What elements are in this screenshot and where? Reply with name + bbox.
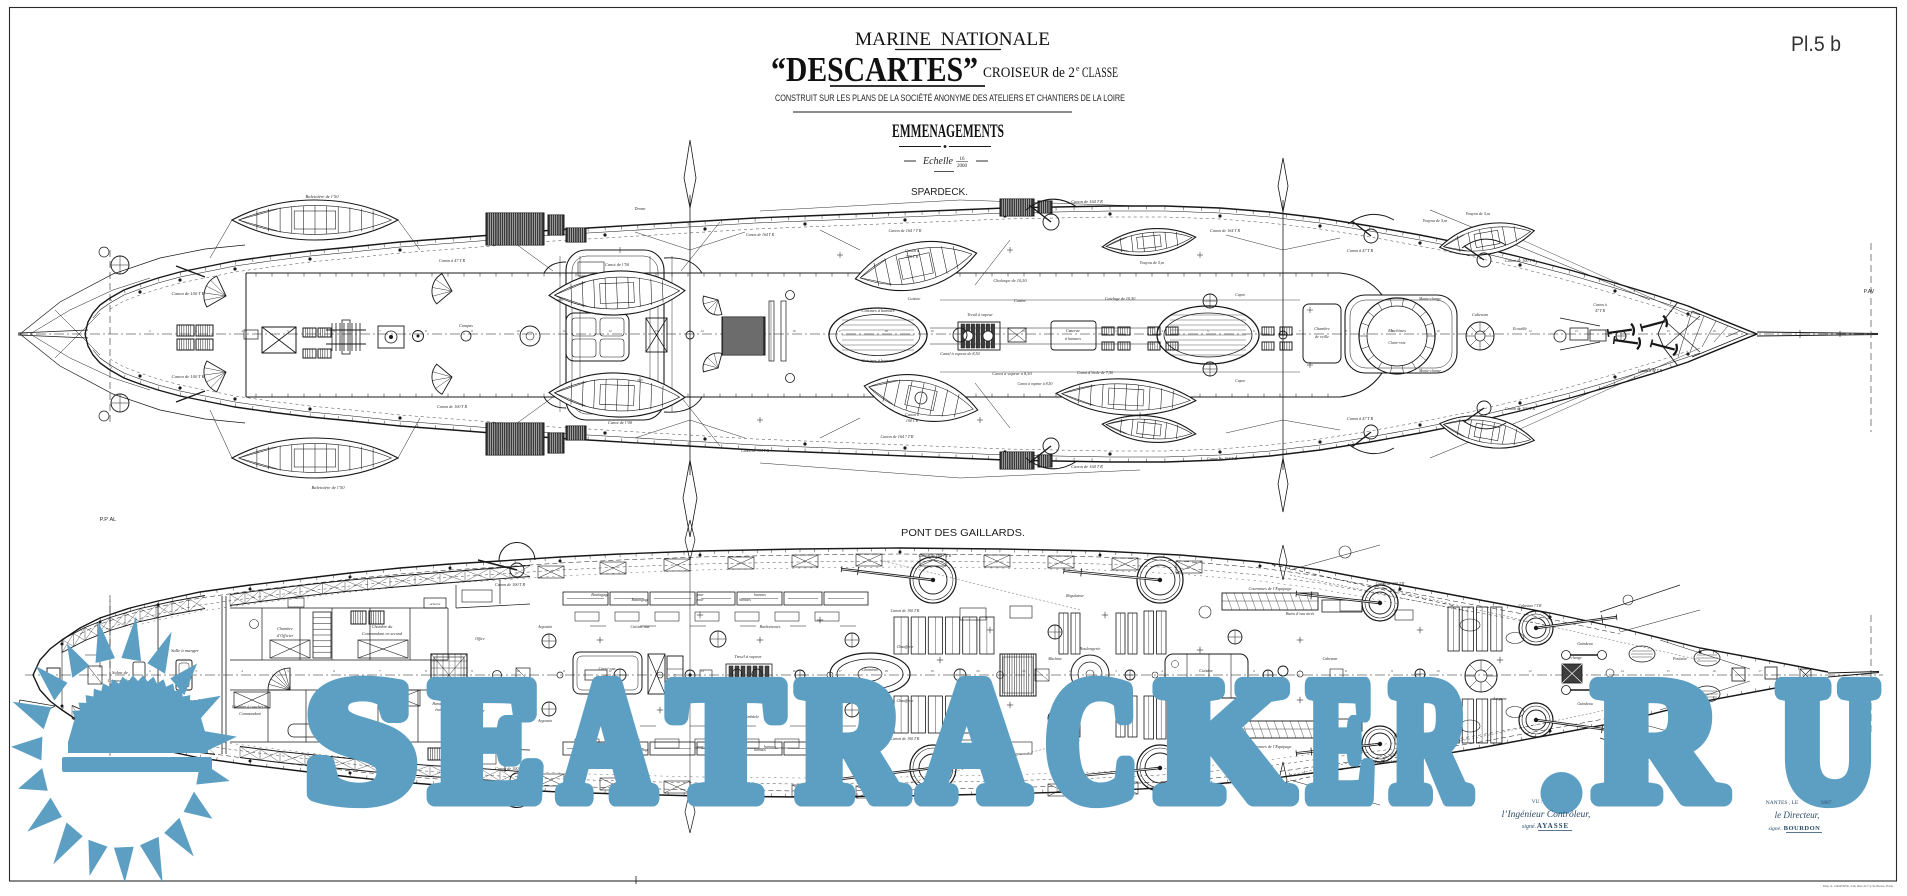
svg-text:Bastingage: Bastingage <box>591 593 609 597</box>
svg-text:Salon de: Salon de <box>112 670 128 675</box>
svg-text:9: 9 <box>471 329 473 333</box>
svg-text:Treuil à vapeur: Treuil à vapeur <box>967 312 993 317</box>
svg-text:Chambre: Chambre <box>1314 326 1330 331</box>
svg-text:Canon de 164 T R: Canon de 164 T R <box>1071 199 1103 204</box>
svg-text:Cabestan: Cabestan <box>1472 312 1488 317</box>
svg-text:2: 2 <box>149 669 151 673</box>
svg-text:15: 15 <box>1666 329 1670 333</box>
svg-text:Canon de 164 ? T R: Canon de 164 ? T R <box>889 228 922 233</box>
svg-text:CROISEUR de 2: CROISEUR de 2 <box>983 65 1075 81</box>
svg-text:Canot de l’50: Canot de l’50 <box>605 262 630 267</box>
svg-text:1887: 1887 <box>1821 800 1832 806</box>
svg-text:12: 12 <box>1528 329 1532 333</box>
svg-text:13: 13 <box>1574 329 1578 333</box>
svg-text:14: 14 <box>700 329 704 333</box>
svg-text:R: R <box>798 646 906 836</box>
svg-text:EMMENAGEMENTS: EMMENAGEMENTS <box>892 122 1004 142</box>
svg-text:pour: pour <box>695 598 704 602</box>
svg-text:Canon de 100 T R: Canon de 100 T R <box>1376 581 1405 586</box>
svg-text:Canon de 100 T R: Canon de 100 T R <box>172 374 205 379</box>
svg-text:Bastingage: Bastingage <box>631 598 648 602</box>
svg-text:Canon de 164 T R: Canon de 164 T R <box>1210 228 1241 233</box>
svg-text:Armoire: Armoire <box>429 602 441 606</box>
svg-text:Salle à manger: Salle à manger <box>171 648 199 653</box>
svg-text:BOURDON: BOURDON <box>1784 825 1821 832</box>
svg-text:Chambre du: Chambre du <box>372 624 393 629</box>
svg-text:3: 3 <box>1115 329 1117 333</box>
svg-text:Canon à: Canon à <box>1593 303 1606 307</box>
svg-text:17: 17 <box>1758 669 1762 673</box>
svg-text:E: E <box>432 646 544 836</box>
svg-text:le Directeur,: le Directeur, <box>1775 810 1820 820</box>
svg-text:Echelle: Echelle <box>922 156 954 167</box>
svg-text:à hamacs: à hamacs <box>1065 336 1081 341</box>
svg-text:Cuisines à hamacs: Cuisines à hamacs <box>862 358 895 363</box>
svg-text:Couronnes de l’Equipage: Couronnes de l’Equipage <box>1249 586 1292 591</box>
svg-text:Cuisine aux: Cuisine aux <box>631 624 650 629</box>
svg-text:6: 6 <box>1253 329 1255 333</box>
svg-text:Compas: Compas <box>459 323 473 328</box>
svg-text:Canon de 100 T R: Canon de 100 T R <box>437 404 468 409</box>
svg-text:Capot: Capot <box>1235 293 1245 297</box>
svg-text:4: 4 <box>1161 329 1163 333</box>
svg-text:Commandant: Commandant <box>239 711 261 716</box>
svg-text:NANTES , LE: NANTES , LE <box>1766 800 1799 806</box>
svg-text:A: A <box>560 646 654 836</box>
svg-text:R: R <box>1391 646 1470 836</box>
svg-text:MARINE NATIONALE: MARINE NATIONALE <box>855 29 1050 50</box>
svg-text:100 T R: 100 T R <box>906 254 919 259</box>
svg-text:Canon de 164 ? T R: Canon de 164 ? T R <box>881 434 914 439</box>
svg-text:100 T R: 100 T R <box>906 418 919 423</box>
svg-text:11: 11 <box>1482 329 1486 333</box>
svg-text:Baleinière de l’50: Baleinière de l’50 <box>306 194 340 199</box>
svg-text:K: K <box>1158 646 1292 836</box>
svg-text:Canon de 164 ? T R: Canon de 164 ? T R <box>919 553 952 558</box>
svg-text:P.P AL: P.P AL <box>100 517 116 523</box>
svg-text:Office: Office <box>475 637 485 641</box>
svg-text:8: 8 <box>425 329 427 333</box>
svg-text:7: 7 <box>379 329 381 333</box>
svg-text:signé.: signé. <box>1769 826 1782 832</box>
svg-text:Baleinière de l’50: Baleinière de l’50 <box>312 485 346 490</box>
svg-text:Monte-charge: Monte-charge <box>1418 297 1441 301</box>
svg-text:3: 3 <box>195 669 197 673</box>
svg-text:A: A <box>920 646 1028 836</box>
svg-text:CONSTRUIT SUR LES PLANS DE LA: CONSTRUIT SUR LES PLANS DE LA SOCIÉTÉ AN… <box>775 93 1125 103</box>
svg-text:Guindeau: Guindeau <box>1577 642 1592 646</box>
svg-text:7: 7 <box>1299 329 1301 333</box>
svg-text:VU :: VU : <box>1532 799 1543 805</box>
svg-text:Canon à: Canon à <box>905 412 919 417</box>
svg-text:Caserne: Caserne <box>1066 328 1080 333</box>
svg-text:11: 11 <box>562 329 566 333</box>
svg-text:Capot: Capot <box>1235 379 1245 383</box>
svg-text:Commandant en second: Commandant en second <box>362 631 403 636</box>
svg-text:U: U <box>1778 646 1878 836</box>
svg-text:16: 16 <box>1712 329 1716 333</box>
svg-text:Régulateur: Régulateur <box>1065 593 1084 598</box>
svg-text:C: C <box>1046 646 1138 836</box>
svg-text:10: 10 <box>516 329 520 333</box>
svg-text:Monte-charge: Monte-charge <box>1418 369 1441 373</box>
svg-text:Machines: Machines <box>1387 328 1406 333</box>
svg-text:Cuisines à hamacs: Cuisines à hamacs <box>862 308 895 313</box>
svg-text:Guindeau: Guindeau <box>1577 702 1592 706</box>
svg-text:Canon de 164 T R: Canon de 164 T R <box>1071 464 1103 469</box>
svg-text:Cuisine: Cuisine <box>1014 299 1026 303</box>
svg-text:2000: 2000 <box>957 164 968 169</box>
svg-text:Canon de 100 T R: Canon de 100 T R <box>1505 406 1536 411</box>
svg-text:Canot de l’00: Canot de l’00 <box>608 420 633 425</box>
svg-text:“DESCARTES”: “DESCARTES” <box>771 50 978 89</box>
svg-text:Argousin: Argousin <box>537 625 552 629</box>
svg-text:hamacs: hamacs <box>739 598 751 602</box>
svg-text:4: 4 <box>241 669 243 673</box>
svg-text:CLASSE: CLASSE <box>1082 65 1118 81</box>
svg-text:Canon de 164 T R: Canon de 164 T R <box>741 449 770 453</box>
svg-text:Canon à 47 T R: Canon à 47 T R <box>1347 248 1374 253</box>
svg-text:de veille: de veille <box>1315 334 1329 339</box>
svg-text:signé.: signé. <box>1522 824 1536 830</box>
svg-text:5: 5 <box>1207 329 1209 333</box>
svg-text:Pl.5 b: Pl.5 b <box>1791 33 1841 56</box>
svg-text:Barbotteuses: Barbotteuses <box>760 624 781 629</box>
svg-text:2: 2 <box>149 329 151 333</box>
svg-text:Cabestan ? T R: Cabestan ? T R <box>1519 604 1543 608</box>
svg-text:Chambre: Chambre <box>277 626 293 631</box>
svg-text:AYASSE: AYASSE <box>1537 822 1569 830</box>
svg-text:12: 12 <box>608 329 612 333</box>
svg-text:La gatte: La gatte <box>1492 696 1506 701</box>
svg-text:5: 5 <box>287 669 289 673</box>
svg-text:e: e <box>1076 64 1080 73</box>
svg-text:Canon de 164 T R: Canon de 164 T R <box>1207 456 1238 461</box>
svg-text:Canon de 164 T R: Canon de 164 T R <box>746 233 775 237</box>
svg-text:pour: pour <box>695 593 704 597</box>
svg-text:Bains d’eau airés: Bains d’eau airés <box>1286 611 1315 616</box>
svg-text:Ecoutille: Ecoutille <box>1512 327 1527 331</box>
svg-text:18: 18 <box>884 329 888 333</box>
svg-text:Canon à 47 T R: Canon à 47 T R <box>1638 369 1663 373</box>
svg-text:Canon à: Canon à <box>905 248 919 253</box>
svg-text:Canon à 47 T R: Canon à 47 T R <box>439 258 466 263</box>
svg-text:Canon de 100 T R: Canon de 100 T R <box>172 291 205 296</box>
svg-text:P.AV: P.AV <box>1864 289 1875 295</box>
svg-text:R: R <box>1595 646 1724 836</box>
svg-text:8: 8 <box>425 669 427 673</box>
svg-text:Claire-voie: Claire-voie <box>1388 341 1405 345</box>
svg-text:hamacs: hamacs <box>754 593 766 597</box>
svg-text:4: 4 <box>241 329 243 333</box>
svg-text:Canon de 100 T R: Canon de 100 T R <box>891 608 920 613</box>
svg-text:l’Ingénieur Contrôleur,: l’Ingénieur Contrôleur, <box>1502 810 1591 820</box>
svg-text:T: T <box>670 646 782 836</box>
svg-text:SPARDECK.: SPARDECK. <box>911 187 968 198</box>
svg-text:17: 17 <box>838 329 842 333</box>
svg-text:Canon de 100 T R: Canon de 100 T R <box>1505 258 1536 263</box>
svg-text:Canon à 47 T R: Canon à 47 T R <box>1347 416 1374 421</box>
svg-text:10: 10 <box>1436 329 1440 333</box>
svg-text:12: 12 <box>1528 669 1532 673</box>
svg-text:E: E <box>1308 646 1375 836</box>
svg-text:Canon de 100 T R: Canon de 100 T R <box>495 582 526 587</box>
svg-text:S: S <box>306 646 416 836</box>
svg-text:PONT DES GAILLARDS.: PONT DES GAILLARDS. <box>901 528 1025 539</box>
svg-text:Drome: Drome <box>634 207 646 211</box>
svg-text:47 T R: 47 T R <box>1595 309 1606 313</box>
svg-text:19: 19 <box>930 329 934 333</box>
svg-text:Cuisine: Cuisine <box>908 296 921 301</box>
svg-text:d’Officier: d’Officier <box>277 633 294 638</box>
svg-text:13: 13 <box>654 669 658 673</box>
svg-text:16: 16 <box>792 329 796 333</box>
